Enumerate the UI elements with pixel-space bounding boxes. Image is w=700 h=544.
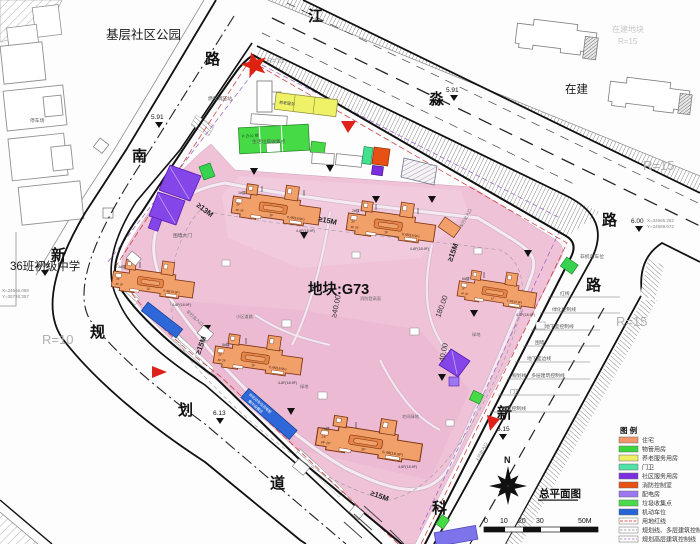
svg-text:Y=34689.672: Y=34689.672: [647, 224, 674, 229]
svg-text:6.13: 6.13: [213, 410, 226, 417]
svg-text:门卫: 门卫: [642, 464, 654, 472]
svg-text:6.00: 6.00: [37, 262, 50, 269]
svg-text:5.91: 5.91: [446, 87, 459, 94]
svg-text:住宅: 住宅: [642, 437, 654, 445]
svg-text:0: 0: [484, 518, 488, 525]
svg-text:规划高层建筑控制线: 规划高层建筑控制线: [642, 536, 696, 544]
svg-text:总平面图: 总平面图: [539, 487, 581, 500]
svg-text:消防控制室: 消防控制室: [642, 482, 672, 490]
svg-text:规划线、多层建筑控制线: 规划线、多层建筑控制线: [512, 372, 565, 379]
svg-text:绿地: 绿地: [472, 331, 481, 337]
svg-text:6.15: 6.15: [497, 426, 510, 433]
svg-text:红线: 红线: [560, 290, 570, 297]
svg-text:4-6F(18.9F): 4-6F(18.9F): [516, 313, 535, 317]
svg-text:R=10: R=10: [42, 332, 73, 347]
svg-text:在建地块: 在建地块: [612, 24, 644, 34]
svg-text:50M: 50M: [578, 518, 592, 525]
svg-text:新: 新: [51, 246, 66, 264]
svg-text:非机动车位: 非机动车位: [580, 253, 604, 260]
svg-text:停车场: 停车场: [30, 117, 45, 124]
svg-text:养老服务用房: 养老服务用房: [642, 455, 678, 463]
svg-text:1#楼: 1#楼: [238, 190, 246, 195]
svg-text:路: 路: [602, 211, 618, 229]
svg-text:围墙大门: 围墙大门: [173, 232, 192, 239]
svg-text:R=15: R=15: [616, 314, 647, 329]
svg-text:图 例: 图 例: [620, 425, 638, 435]
svg-text:小区道路: 小区道路: [236, 313, 254, 320]
svg-text:R=15: R=15: [267, 58, 284, 65]
svg-text:在建: 在建: [565, 82, 588, 96]
svg-text:生活垃圾收集点: 生活垃圾收集点: [252, 138, 286, 145]
svg-text:R=15: R=15: [618, 37, 638, 46]
svg-text:科: 科: [432, 499, 447, 517]
svg-text:划: 划: [178, 401, 193, 419]
svg-text:规: 规: [90, 324, 105, 341]
svg-text:4-6F(18.9F): 4-6F(18.9F): [398, 465, 417, 469]
svg-text:基层社区公园: 基层社区公园: [106, 27, 181, 42]
svg-text:路: 路: [205, 50, 221, 68]
svg-text:绿化控制线: 绿化控制线: [552, 306, 576, 313]
svg-text:垃圾收集点: 垃圾收集点: [642, 500, 672, 508]
svg-text:配电房: 配电房: [642, 491, 660, 499]
svg-text:N: N: [504, 455, 511, 465]
svg-text:宅间绿地: 宅间绿地: [402, 413, 420, 420]
svg-text:地下室控制线: 地下室控制线: [545, 323, 574, 330]
svg-text:南: 南: [132, 147, 147, 165]
svg-text:围墙: 围墙: [535, 339, 545, 346]
svg-text:4-6F(18.9F): 4-6F(18.9F): [172, 303, 191, 307]
svg-text:物管用房: 物管用房: [642, 446, 666, 454]
svg-text:R=15: R=15: [643, 158, 674, 173]
svg-text:P 办公 楼: P 办公 楼: [242, 132, 259, 139]
svg-text:地下室边线: 地下室边线: [527, 355, 551, 362]
svg-text:4-6F(18.9F): 4-6F(18.9F): [278, 381, 297, 385]
svg-text:4-6F(18.9F): 4-6F(18.9F): [296, 229, 315, 233]
svg-text:路: 路: [586, 276, 602, 294]
svg-text:6#楼: 6#楼: [462, 276, 470, 281]
svg-text:江: 江: [308, 7, 323, 25]
svg-text:3#楼: 3#楼: [118, 264, 126, 269]
svg-text:规划线、多层建筑控制线: 规划线、多层建筑控制线: [642, 527, 700, 535]
svg-text:2#楼: 2#楼: [352, 208, 360, 213]
svg-text:淼: 淼: [428, 90, 445, 108]
svg-text:用地红线: 用地红线: [642, 518, 666, 526]
svg-text:5.91: 5.91: [151, 114, 164, 121]
svg-text:4-6F(18.9F): 4-6F(18.9F): [410, 247, 429, 251]
svg-text:7#楼: 7#楼: [322, 426, 330, 431]
svg-text:道: 道: [270, 474, 285, 492]
svg-text:30: 30: [536, 518, 544, 525]
svg-text:门卫: 门卫: [510, 388, 520, 395]
svg-text:燃气调压站: 燃气调压站: [208, 95, 232, 102]
svg-text:X=34665.282: X=34665.282: [647, 218, 674, 223]
svg-text:6.00: 6.00: [631, 218, 644, 225]
svg-text:建筑控制线: 建筑控制线: [502, 405, 526, 412]
svg-text:社区服务用房: 社区服务用房: [642, 473, 678, 481]
svg-text:机动车位: 机动车位: [642, 509, 666, 517]
svg-text:5#楼: 5#楼: [222, 342, 230, 347]
svg-text:10: 10: [500, 518, 508, 525]
svg-text:Y=35726.357: Y=35726.357: [2, 294, 29, 299]
svg-text:绿地: 绿地: [300, 383, 309, 389]
svg-text:20: 20: [518, 518, 526, 525]
svg-text:X=34666.088: X=34666.088: [2, 288, 29, 293]
